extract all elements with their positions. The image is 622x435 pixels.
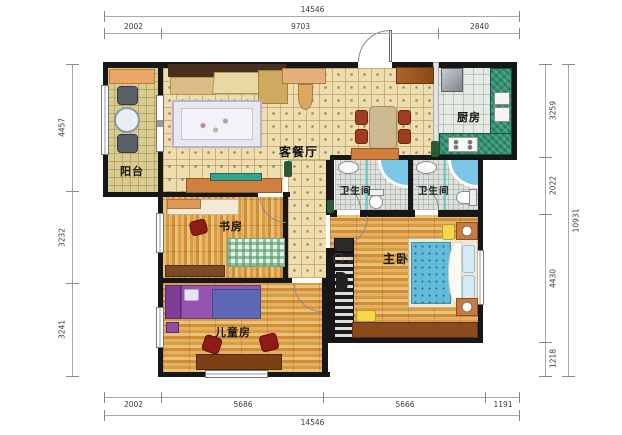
wall-balcony-divider-top xyxy=(158,62,163,95)
kitchen-appliance xyxy=(494,107,510,122)
dim-line xyxy=(105,33,520,34)
plant xyxy=(327,200,334,213)
dim-right-total: 10931 xyxy=(572,201,581,241)
wall-study-kids-divider xyxy=(158,278,292,283)
dim-top-total: 14546 xyxy=(105,5,520,14)
fridge xyxy=(441,68,463,92)
living-rug-inner xyxy=(181,108,253,140)
study-cabinet xyxy=(165,265,225,277)
dim-tick xyxy=(539,157,552,158)
study-desk-shelf xyxy=(167,199,201,209)
room-label-study: 书房 xyxy=(219,218,243,234)
dining-chair xyxy=(398,129,411,144)
wall-bath-divider xyxy=(408,160,413,210)
room-label-kitchen: 厨房 xyxy=(457,109,481,125)
sofa-cushion-mid xyxy=(212,72,262,94)
sideboard xyxy=(351,148,399,160)
kids-bed-pillow xyxy=(184,289,199,301)
dim-top-seg: 9703 xyxy=(162,22,439,31)
dim-line xyxy=(545,65,546,377)
room-label-kids: 儿童房 xyxy=(215,324,251,340)
dim-line xyxy=(105,16,520,17)
master-nightstand-bottom xyxy=(456,298,478,316)
dim-top-seg: 2002 xyxy=(105,22,162,31)
dim-line xyxy=(568,65,569,377)
balcony-table xyxy=(114,107,140,133)
dim-left-seg: 4457 xyxy=(58,108,67,148)
room-label-master: 主卧 xyxy=(383,250,409,267)
bathroom1-sink xyxy=(338,161,359,174)
master-bed-pillow xyxy=(462,245,475,273)
window-kids-left xyxy=(156,307,164,348)
dim-right-seg: 1218 xyxy=(549,339,558,379)
master-bed-mattress xyxy=(411,242,451,304)
wall-kitchen-right xyxy=(512,62,517,160)
tv-screen xyxy=(210,173,262,181)
dim-bottom-seg: 5686 xyxy=(162,400,324,409)
dim-right-seg: 2022 xyxy=(549,166,558,206)
room-label-balcony: 阳台 xyxy=(120,163,144,179)
window-kids-bottom xyxy=(205,370,268,378)
wall-right-lower xyxy=(478,155,483,343)
dim-bottom-seg: 1191 xyxy=(486,400,520,409)
dim-bottom-seg: 5666 xyxy=(324,400,486,409)
dim-left-seg: 3232 xyxy=(58,218,67,258)
balcony-planter xyxy=(109,69,155,84)
stove xyxy=(448,137,478,152)
entrance-door-swing-arc xyxy=(358,30,390,62)
dim-top-seg: 2840 xyxy=(439,22,520,31)
bathroom2-toilet-bowl xyxy=(456,191,470,204)
dim-bottom-seg: 2002 xyxy=(105,400,162,409)
kids-bed-blanket xyxy=(212,289,261,319)
dim-left-seg: 3241 xyxy=(58,310,67,350)
dining-chair xyxy=(398,110,411,125)
dim-tick xyxy=(66,191,79,192)
room-label-bathroom2: 卫生间 xyxy=(418,183,450,197)
study-daybed xyxy=(227,238,285,267)
kitchen-appliance xyxy=(494,92,510,105)
shoe-cabinet xyxy=(396,67,434,84)
dim-line xyxy=(105,397,520,398)
dim-tick xyxy=(66,64,79,65)
dim-line xyxy=(105,415,520,416)
dim-right-seg: 4430 xyxy=(549,259,558,299)
dim-right-seg: 3259 xyxy=(549,91,558,131)
master-stool-bottom xyxy=(356,310,376,322)
wall-bath-bottom-3 xyxy=(438,210,478,217)
wall-cabinet-pendant xyxy=(298,84,313,110)
dim-bottom-total: 14546 xyxy=(105,418,520,427)
dim-tick xyxy=(562,64,575,65)
window-study xyxy=(156,213,164,253)
master-wardrobe-mirror xyxy=(336,272,348,292)
dining-table xyxy=(369,106,397,149)
kids-desk xyxy=(196,354,282,370)
master-stool-top xyxy=(442,224,455,240)
bathroom1-toilet-bowl xyxy=(369,195,383,209)
master-bed-blanket-fold xyxy=(448,242,462,304)
entrance-door-leaf xyxy=(389,30,392,62)
wall-master-bottom xyxy=(322,338,483,343)
dim-tick xyxy=(562,376,575,377)
dim-line xyxy=(72,65,73,377)
window-balcony xyxy=(101,85,109,155)
dining-chair xyxy=(355,110,368,125)
bathroom2-sink xyxy=(416,161,437,174)
hallway-floor xyxy=(288,160,326,278)
dim-tick xyxy=(539,214,552,215)
room-label-living-dining: 客餐厅 xyxy=(279,143,318,160)
master-wardrobe-top xyxy=(334,238,354,252)
dim-tick xyxy=(539,64,552,65)
balcony-chair-bottom xyxy=(117,134,138,153)
dim-tick xyxy=(66,283,79,284)
wall-cabinet-top xyxy=(282,68,326,84)
master-bench xyxy=(352,322,478,338)
sofa-cushion-left xyxy=(170,77,215,95)
dim-tick xyxy=(66,376,79,377)
floor-plan-canvas: 阳台 客餐厅 厨房 卫生间 卫生间 书房 主卧 儿童房 全屋定制 14546 2… xyxy=(0,0,622,435)
watermark-text: 全屋定制 xyxy=(346,254,378,265)
balcony-chair-top xyxy=(117,86,138,105)
bathroom2-toilet-tank xyxy=(469,189,477,206)
room-label-bathroom1: 卫生间 xyxy=(340,183,372,197)
balcony-slider-door xyxy=(156,95,164,152)
plant xyxy=(431,141,439,157)
kids-side-table xyxy=(166,322,179,333)
master-nightstand-top xyxy=(456,222,478,240)
plant xyxy=(284,161,292,177)
kids-bed-headboard xyxy=(165,285,181,319)
wall-balcony-bottom xyxy=(103,192,165,197)
wall-balcony-divider-bottom xyxy=(158,152,163,197)
wall-bath-bottom-2 xyxy=(360,210,415,217)
dining-chair xyxy=(355,129,368,144)
watermark-logo-icon xyxy=(333,253,344,264)
wall-master-left xyxy=(326,248,334,338)
